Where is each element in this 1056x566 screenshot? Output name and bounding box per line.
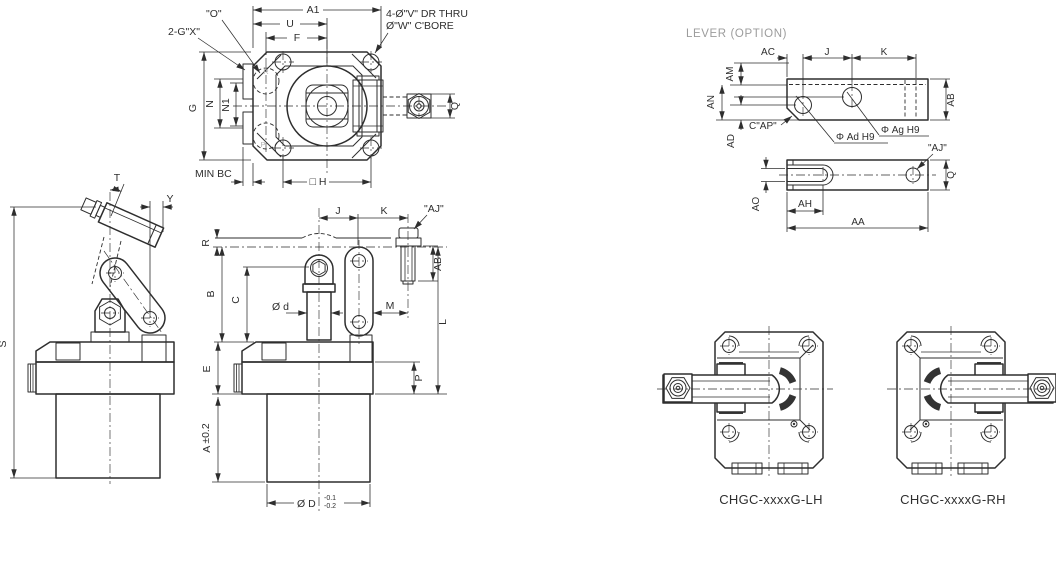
model-label-lh: CHGC-xxxxG-LH [719,492,823,507]
dim-label-ah: AH [798,199,812,210]
dim-label-g: G [187,104,199,112]
drawing-svg: R P A1 U F "O" 2-G"X" 4-Ø"V" DR THRU Ø"W… [0,0,1056,566]
lever-section-title: LEVER (OPTION) [686,28,787,40]
dim-label-s: S [0,340,9,347]
technical-drawing-canvas: R P A1 U F "O" 2-G"X" 4-Ø"V" DR THRU Ø"W… [0,0,1056,566]
drill-note-line2: Ø"W" C'BORE [386,20,454,32]
front-view-rh: CHGC-xxxxG-RH [887,326,1056,507]
front-view-dimensioned: R J K "AJ" AB B C Ø d M L P E A±0.2 Ø D … [200,203,449,512]
dim-label-b: B [205,290,217,297]
dim-label-c: C [230,296,242,304]
port-label-p: P [260,140,265,149]
dim-label-ac: AC [761,47,775,58]
dim-label-lever-j: J [825,47,830,58]
dim-label-f: F [294,32,300,44]
side-view-tilted-arm: T Y S [0,172,174,484]
model-label-rh: CHGC-xxxxG-RH [900,492,1006,507]
dim-label-am: AM [725,67,736,82]
dim-label-dia-d: Ø d [272,301,289,313]
dim-label-n: N [204,100,216,108]
dim-label-o: "O" [206,8,222,20]
dim-label-j: J [335,205,340,217]
dim-label-y: Y [166,193,173,205]
top-view: R P A1 U F "O" 2-G"X" 4-Ø"V" DR THRU Ø"W… [168,4,468,188]
dim-label-dia-D-tol-lower: -0.2 [324,503,336,510]
dim-label-lever-ab: AB [946,93,957,107]
dim-label-dia-ad-h9: Φ Ad H9 [836,132,875,143]
dim-label-a: A±0.2 [200,423,213,453]
front-view-lh: CHGC-xxxxG-LH [657,326,833,507]
dim-label-ad: AD [726,134,737,148]
dim-label-square-h: □ H [310,176,327,188]
dim-label-q-top: Q [449,102,461,110]
dim-label-e: E [201,365,213,372]
dim-label-dia-D-tol-upper: -0.1 [324,495,336,502]
lever-option-views: LEVER (OPTION) AC J K AM AN AD AB C"AP" … [686,28,957,232]
dim-label-lever-k: K [881,47,888,58]
dim-label-aj: "AJ" [424,203,444,215]
dim-label-m: M [386,300,395,312]
dim-label-dia-ag-h9: Φ Ag H9 [881,125,920,136]
dim-label-ao: AO [751,197,762,212]
dim-label-u: U [286,18,294,30]
dim-label-gx: 2-G"X" [168,26,200,38]
dim-label-aa: AA [851,217,865,228]
dim-label-lever-aj: "AJ" [928,143,947,154]
dim-label-k: K [380,205,387,217]
dim-label-cap: C"AP" [749,121,777,132]
dim-label-a1: A1 [307,4,320,16]
dim-label-t: T [114,172,121,184]
dim-label-r: R [200,239,212,247]
drill-note-line1: 4-Ø"V" DR THRU [386,8,468,20]
dim-label-n1: N1 [220,98,232,112]
dim-label-l: L [437,319,449,325]
dim-label-min-bc: MIN BC [195,168,232,180]
dim-label-lever-q: Q [946,171,957,179]
dim-label-an: AN [706,95,717,109]
dim-label-dia-D: Ø D [297,498,316,510]
dim-label-p: P [413,374,425,381]
